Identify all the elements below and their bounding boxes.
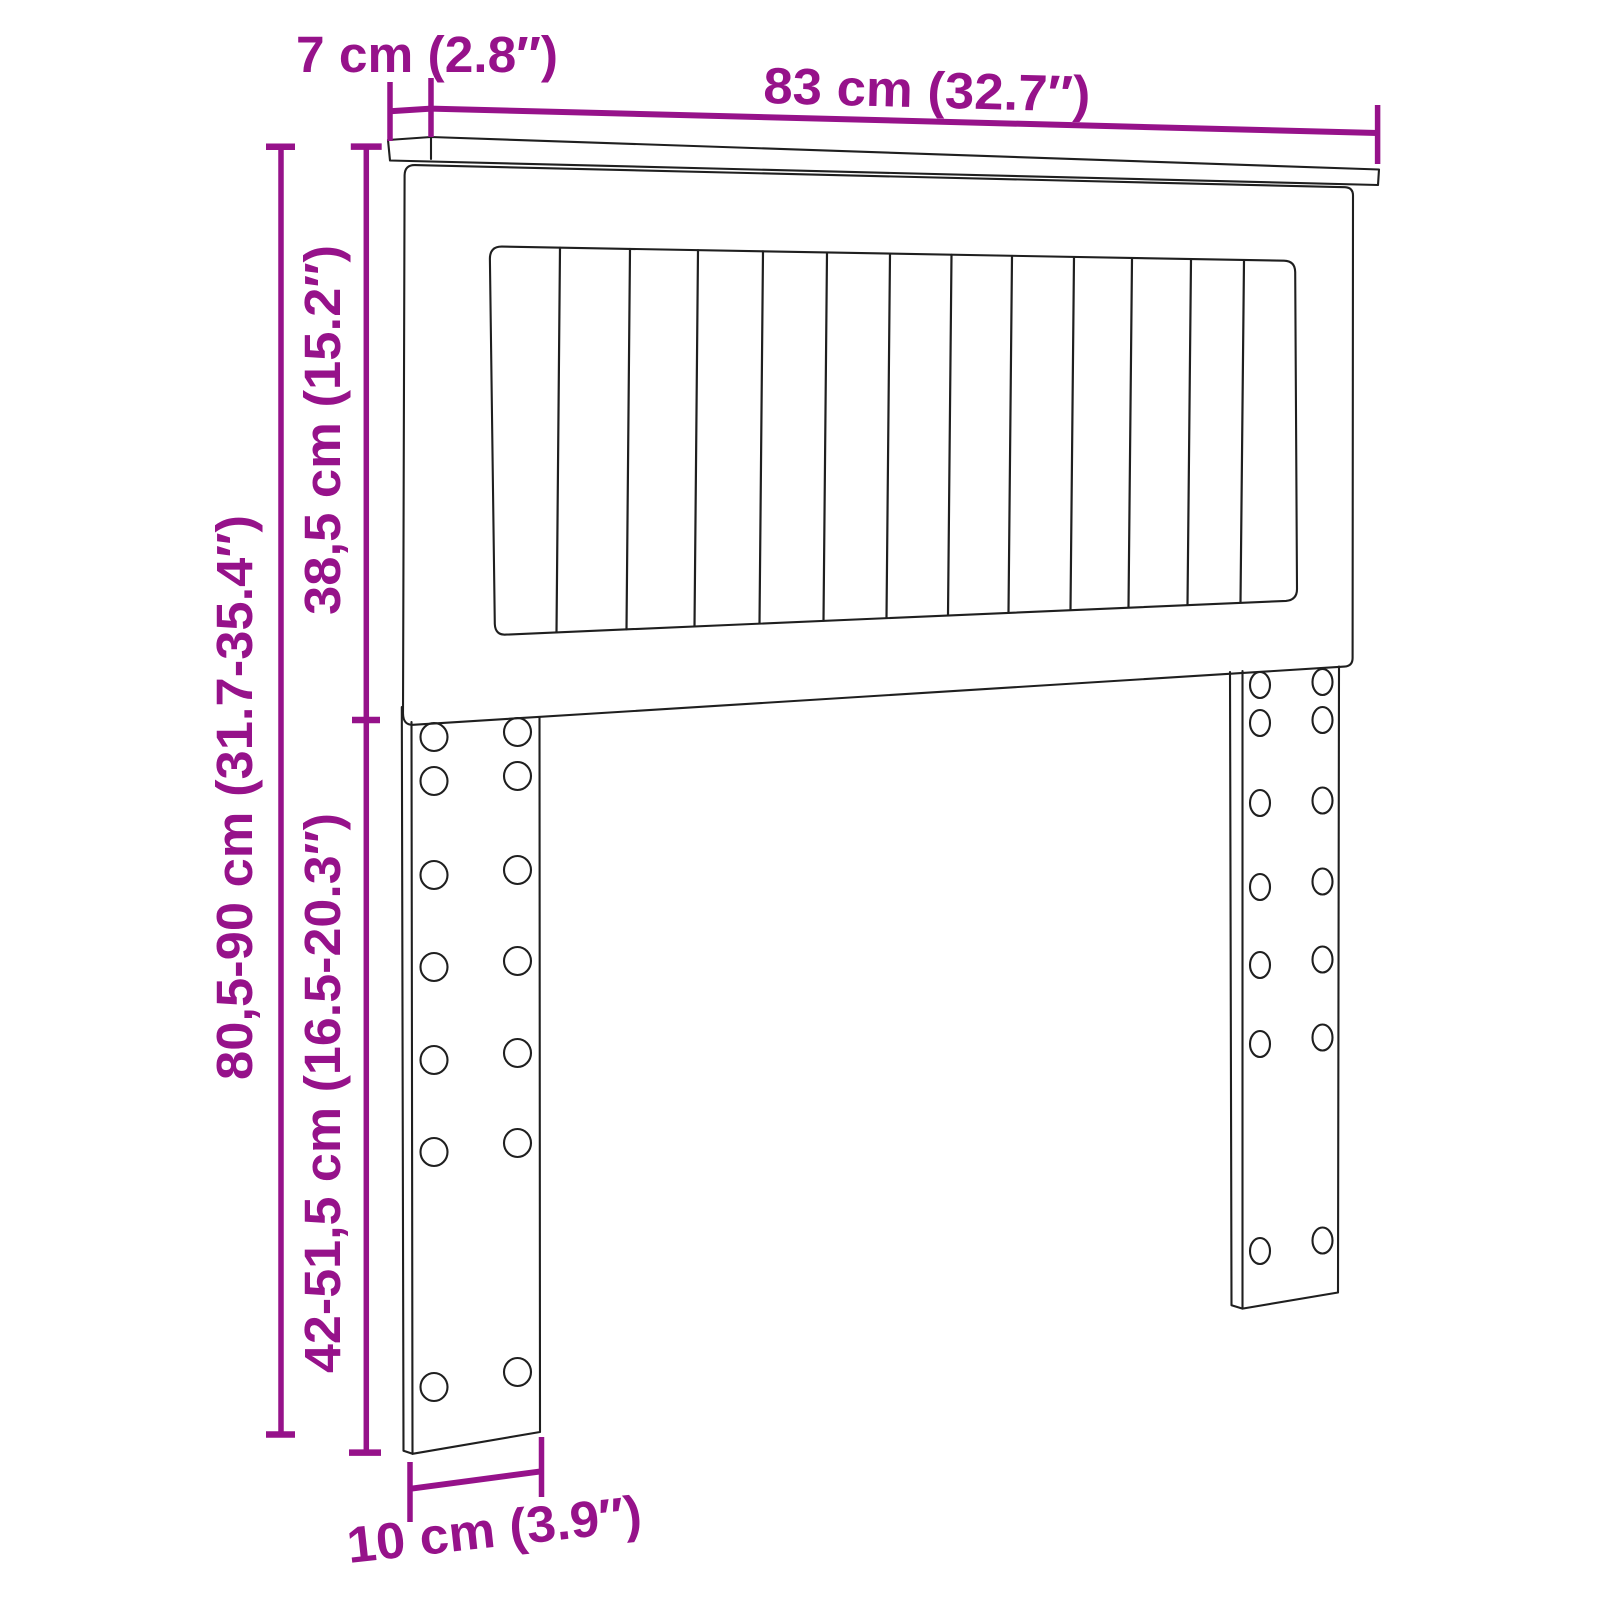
svg-text:80,5-90 cm (31.7-35.4″): 80,5-90 cm (31.7-35.4″) xyxy=(206,515,263,1080)
svg-text:38,5 cm (15.2″): 38,5 cm (15.2″) xyxy=(294,245,351,615)
svg-text:42-51,5 cm (16.5-20.3″): 42-51,5 cm (16.5-20.3″) xyxy=(294,813,351,1373)
svg-text:83 cm (32.7″): 83 cm (32.7″) xyxy=(763,57,1091,123)
svg-text:7 cm (2.8″): 7 cm (2.8″) xyxy=(296,26,558,83)
svg-text:10 cm (3.9″): 10 cm (3.9″) xyxy=(344,1485,644,1574)
